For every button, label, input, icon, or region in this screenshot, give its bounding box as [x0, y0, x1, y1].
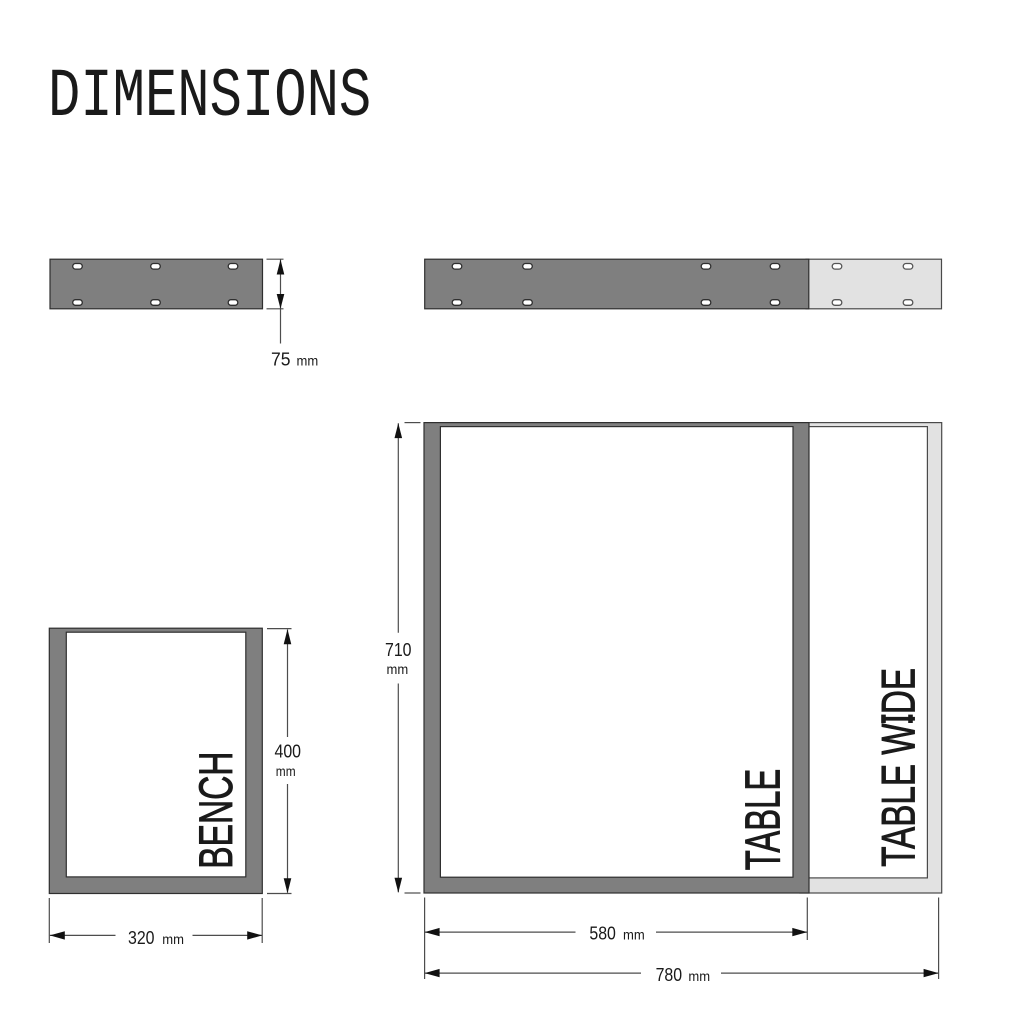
svg-text:TABLE WIDE: TABLE WIDE [872, 668, 925, 867]
svg-text:mm: mm [297, 352, 319, 368]
svg-text:TABLE: TABLE [735, 769, 790, 871]
svg-text:mm: mm [276, 763, 296, 779]
svg-text:mm: mm [387, 661, 409, 677]
svg-text:400: 400 [275, 741, 302, 762]
svg-text:BENCH: BENCH [189, 752, 242, 869]
svg-text:mm: mm [623, 927, 645, 943]
svg-text:75: 75 [271, 348, 291, 369]
svg-text:320: 320 [128, 927, 155, 948]
svg-text:mm: mm [688, 968, 710, 984]
svg-text:780: 780 [656, 964, 683, 985]
svg-text:DIMENSIONS: DIMENSIONS [48, 58, 371, 136]
svg-text:710: 710 [385, 639, 412, 660]
svg-text:580: 580 [589, 923, 616, 944]
svg-text:mm: mm [162, 931, 184, 947]
